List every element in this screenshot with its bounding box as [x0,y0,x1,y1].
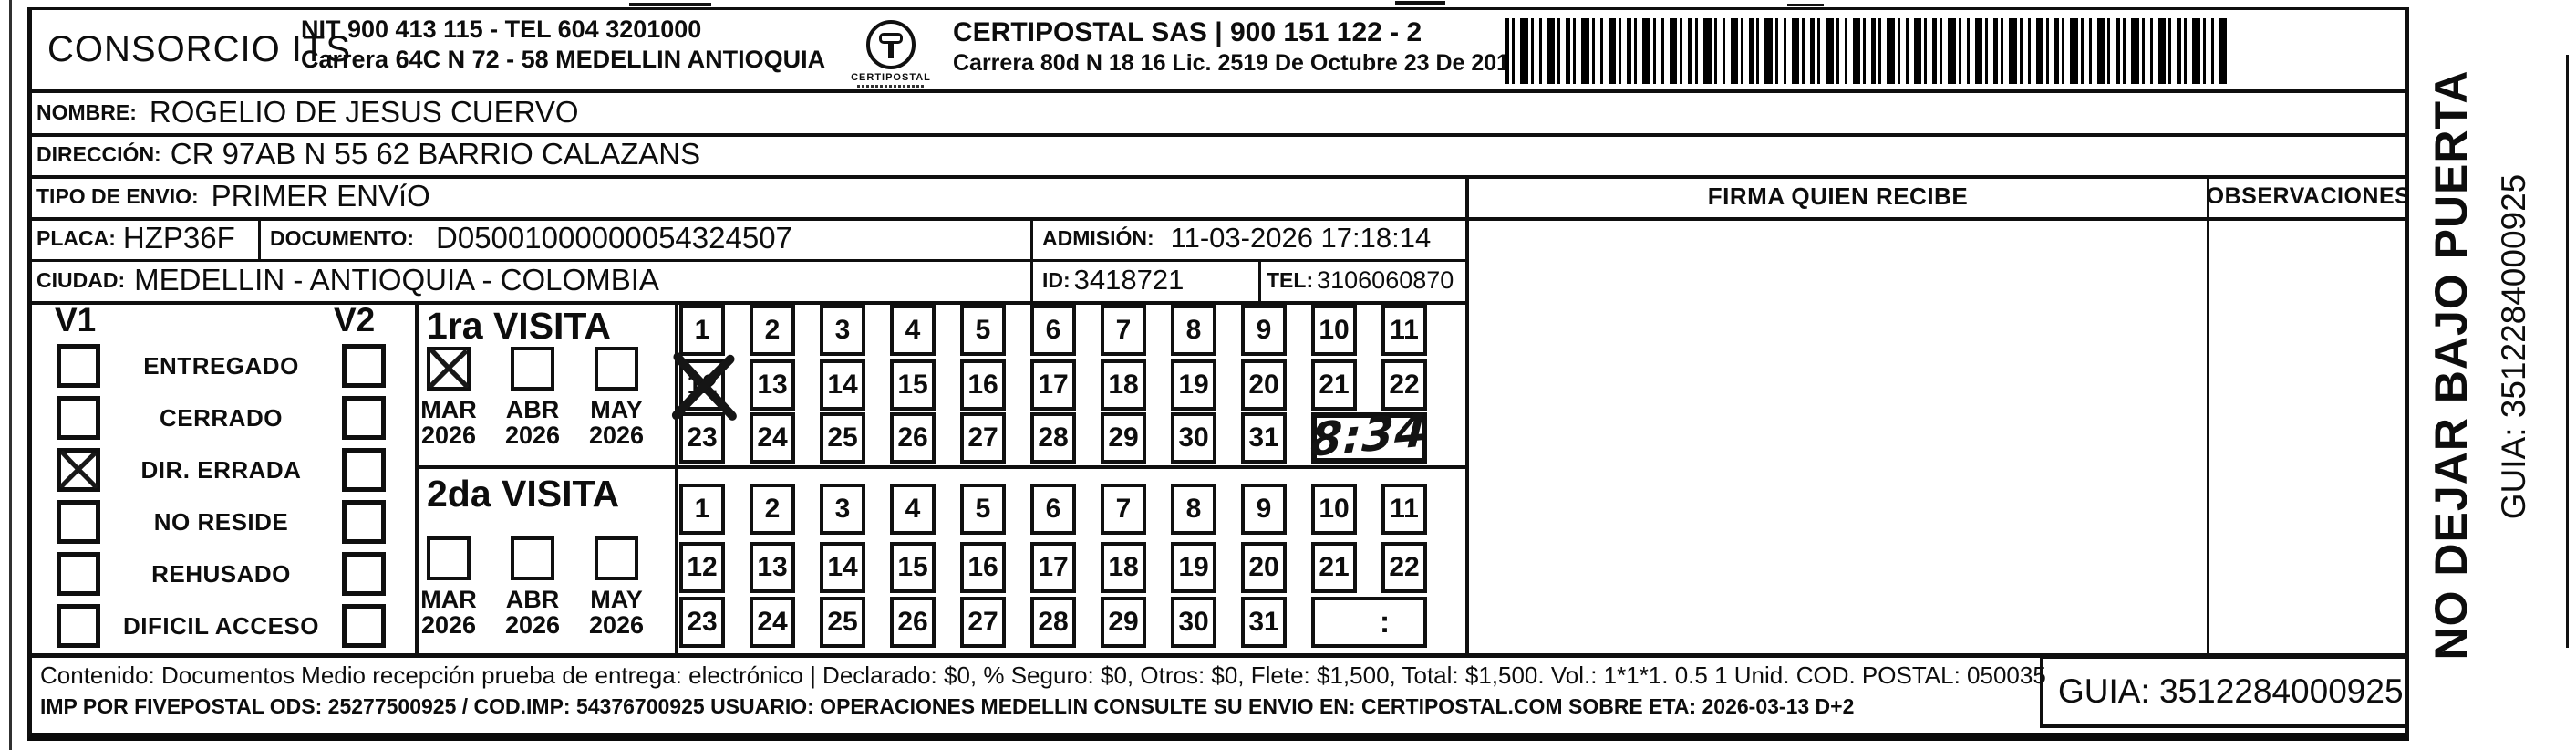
day-box-10: 10 [1311,305,1357,356]
month-name: MAR [420,587,477,612]
day-box-22: 22 [1381,359,1427,411]
status-label: ENTREGADO [100,352,342,380]
guia-number-box: GUIA: 3512284000925 [2040,655,2409,728]
day-box-10: 10 [1311,484,1357,535]
status-label: NO RESIDE [100,508,342,536]
day-number: 10 [1319,315,1349,346]
day-box-7: 7 [1101,305,1146,356]
day-box-18: 18 [1101,542,1146,593]
day-number: 24 [757,607,787,638]
day-box-7: 7 [1101,484,1146,535]
postal-seal-icon [866,20,916,69]
day-number: 5 [976,494,991,525]
status-label: DIFICIL ACCESO [100,612,342,641]
handwritten-x-mark [668,349,740,424]
certipostal-info-line2: Carrera 80d N 18 16 Lic. 2519 De Octubre… [953,49,1522,77]
day-box-5: 5 [960,484,1006,535]
day-box-14: 14 [820,542,865,593]
status-checkbox-v2 [342,448,386,492]
month-name: MAY [590,587,643,612]
day-box-31: 31 [1241,412,1287,464]
placa-cell: PLACA: HZP36F [27,217,258,259]
day-number: 14 [827,370,857,401]
visit1-day-row: 12 13141516171819202122 [679,359,1429,411]
status-checkbox-v2 [342,604,386,648]
certipostal-info-line1: CERTIPOSTAL SAS | 900 151 122 - 2 [953,16,1522,49]
day-number: 15 [897,370,927,401]
day-box-25: 25 [820,597,865,648]
day-number: 17 [1038,370,1068,401]
month-checkbox [595,347,638,391]
day-number: 16 [967,552,998,583]
day-box-31: 31 [1241,597,1287,648]
scan-artifact [1395,1,1445,5]
visit1-day-row: 2324252627282930318:34 [679,412,1429,464]
day-box-15: 15 [890,542,936,593]
observaciones-header: OBSERVACIONES [2209,175,2407,217]
day-box-13: 13 [750,542,795,593]
month-option: MAR2026 [418,536,480,638]
ciudad-label: CIUDAD: [36,268,125,293]
scan-edge-line [9,0,12,750]
day-number: 26 [897,422,927,453]
day-number: 22 [1389,370,1419,401]
certipostal-info: CERTIPOSTAL SAS | 900 151 122 - 2 Carrer… [953,16,1522,77]
tel-cell: TEL: 3106060870 [1261,259,1465,301]
day-number: 28 [1038,422,1068,453]
day-box-3: 3 [820,305,865,356]
month-year: 2026 [589,422,644,448]
status-checkbox-v1 [57,604,100,648]
status-label: DIR. ERRADA [100,456,342,484]
column-header-v2: V2 [334,301,375,339]
consorcio-info-line1: NIT 900 413 115 - TEL 604 3201000 [301,15,825,45]
day-number: 3 [835,315,851,346]
day-box-29: 29 [1101,597,1146,648]
day-number: 11 [1390,315,1419,346]
day-number: 29 [1108,607,1138,638]
status-checkbox-v1 [57,500,100,544]
visit1-day-row: 1234567891011 [679,305,1429,356]
direccion-value: CR 97AB N 55 62 BARRIO CALAZANS [171,137,700,172]
month-option: MAR2026 [418,347,480,448]
month-option: ABR2026 [502,536,564,638]
contenido-block: Contenido: Documentos Medio recepción pr… [40,659,2028,721]
right-edge-line [2566,55,2569,648]
day-number: 20 [1248,552,1278,583]
nombre-row: NOMBRE: ROGELIO DE JESUS CUERVO [27,91,2207,133]
day-number: 29 [1108,422,1138,453]
day-number: 31 [1248,422,1278,453]
day-box-16: 16 [960,359,1006,411]
day-box-18: 18 [1101,359,1146,411]
visit-time-box: 8:34 [1311,412,1427,464]
day-number: 4 [905,494,921,525]
admision-label: ADMISIÓN: [1042,226,1154,251]
tipo-envio-row: TIPO DE ENVIO: PRIMER ENVíO [27,175,1465,217]
visit2-months: MAR2026ABR2026MAY2026 [418,536,647,638]
status-checkbox-v2 [342,344,386,388]
day-number: 24 [757,422,787,453]
id-label: ID: [1042,268,1071,293]
day-box-24: 24 [750,597,795,648]
day-box-20: 20 [1241,359,1287,411]
day-box-6: 6 [1030,484,1076,535]
day-box-11: 11 [1381,305,1427,356]
day-number: 21 [1319,370,1349,401]
month-year: 2026 [505,612,560,638]
day-box-14: 14 [820,359,865,411]
day-number: 4 [905,315,921,346]
day-number: 7 [1116,315,1132,346]
day-number: 7 [1116,494,1132,525]
day-number: 13 [757,552,787,583]
day-number: 27 [967,422,998,453]
day-box-9: 9 [1241,305,1287,356]
day-box-4: 4 [890,484,936,535]
admision-cell: ADMISIÓN: 11-03-2026 17:18:14 [1033,217,1465,259]
day-number: 18 [1108,370,1138,401]
day-number: 6 [1046,494,1061,525]
month-name: ABR [506,587,560,612]
day-number: 8 [1186,494,1202,525]
day-box-26: 26 [890,597,936,648]
day-number: 30 [1178,607,1208,638]
day-box-28: 28 [1030,412,1076,464]
documento-label: DOCUMENTO: [270,226,414,251]
day-number: 30 [1178,422,1208,453]
scan-artifact [1787,4,1824,6]
side-guia-number: GUIA: 3512284000925 [2495,146,2539,547]
month-year: 2026 [505,422,560,448]
month-year: 2026 [421,612,476,638]
id-value: 3418721 [1074,264,1185,297]
status-label: CERRADO [100,404,342,432]
day-box-30: 30 [1171,412,1216,464]
tipo-envio-value: PRIMER ENVíO [212,179,430,214]
day-box-16: 16 [960,542,1006,593]
time-colon-placeholder: : [1349,605,1390,641]
day-box-2: 2 [750,484,795,535]
handwritten-x-mark [427,347,471,391]
day-number: 20 [1248,370,1278,401]
day-number: 9 [1257,315,1272,346]
status-label: REHUSADO [100,560,342,589]
month-name: MAY [590,397,643,422]
day-box-1: 1 [679,484,725,535]
day-box-26: 26 [890,412,936,464]
barcode [1505,18,2229,84]
day-box-11: 11 [1381,484,1427,535]
day-number: 17 [1038,552,1068,583]
day-box-3: 3 [820,484,865,535]
visit2-day-row: 1234567891011 [679,484,1429,535]
day-number: 1 [695,494,710,525]
handwritten-x-mark [57,449,99,491]
day-box-2: 2 [750,305,795,356]
day-box-9: 9 [1241,484,1287,535]
day-number: 31 [1248,607,1278,638]
day-number: 16 [967,370,998,401]
month-option: MAY2026 [585,536,647,638]
tipo-envio-label: TIPO DE ENVIO: [36,184,199,209]
month-checkbox [511,347,554,391]
status-row: REHUSADO [27,551,415,597]
status-panel: V1 V2 ENTREGADOCERRADO DIR. ERRADANO RES… [27,301,415,653]
side-warning-text: NO DEJAR BAJO PUERTA [2425,64,2481,666]
logo-caption: CERTIPOSTAL [841,72,941,83]
column-header-v1: V1 [55,301,96,339]
logo-subline [857,85,925,88]
month-option: ABR2026 [502,347,564,448]
day-number: 13 [757,370,787,401]
status-checkbox-v1 [57,344,100,388]
month-checkbox [595,536,638,580]
status-checkbox-v2 [342,552,386,596]
day-box-25: 25 [820,412,865,464]
ciudad-cell: CIUDAD: MEDELLIN - ANTIOQUIA - COLOMBIA [27,259,1030,301]
nombre-value: ROGELIO DE JESUS CUERVO [150,95,579,130]
day-box-15: 15 [890,359,936,411]
day-number: 11 [1390,494,1419,525]
visit2-title: 2da VISITA [427,473,619,516]
day-box-19: 19 [1171,542,1216,593]
day-box-4: 4 [890,305,936,356]
handwritten-time: 8:34 [1309,403,1429,467]
status-row: ENTREGADO [27,343,415,389]
day-number: 19 [1178,552,1208,583]
day-number: 15 [897,552,927,583]
direccion-label: DIRECCIÓN: [36,142,161,167]
placa-label: PLACA: [36,226,116,251]
day-box-28: 28 [1030,597,1076,648]
tel-value: 3106060870 [1317,266,1454,295]
status-checkbox-v2 [342,396,386,440]
visit2-day-row: 1213141516171819202122 [679,542,1429,593]
contenido-line2: IMP POR FIVEPOSTAL ODS: 25277500925 / CO… [40,692,2028,721]
day-box-27: 27 [960,597,1006,648]
documento-cell: DOCUMENTO: D05001000000054324507 [261,217,1030,259]
day-box-27: 27 [960,412,1006,464]
tel-label: TEL: [1267,268,1313,293]
status-row: DIFICIL ACCESO [27,603,415,649]
day-number: 27 [967,607,998,638]
id-cell: ID: 3418721 [1033,259,1258,301]
ciudad-value: MEDELLIN - ANTIOQUIA - COLOMBIA [134,263,659,297]
day-number: 25 [827,607,857,638]
day-number: 14 [827,552,857,583]
direccion-row: DIRECCIÓN: CR 97AB N 55 62 BARRIO CALAZA… [27,133,2207,175]
status-checkbox-v2 [342,500,386,544]
day-box-17: 17 [1030,359,1076,411]
day-number: 3 [835,494,851,525]
day-box-24: 24 [750,412,795,464]
status-checkbox-v1 [57,552,100,596]
day-box-17: 17 [1030,542,1076,593]
day-number: 9 [1257,494,1272,525]
day-number: 21 [1319,552,1349,583]
day-number: 25 [827,422,857,453]
status-checkbox-v1 [57,448,100,492]
day-box-8: 8 [1171,305,1216,356]
month-checkbox [427,536,471,580]
day-number: 8 [1186,315,1202,346]
day-box-12: 12 [679,542,725,593]
month-name: MAR [420,397,477,422]
month-checkbox [427,347,471,391]
status-checkbox-v1 [57,396,100,440]
day-box-21: 21 [1311,542,1357,593]
status-row: DIR. ERRADA [27,447,415,493]
month-year: 2026 [421,422,476,448]
day-box-22: 22 [1381,542,1427,593]
status-row: CERRADO [27,395,415,441]
day-number: 19 [1178,370,1208,401]
day-box-19: 19 [1171,359,1216,411]
visit1-title: 1ra VISITA [427,305,611,348]
placa-value: HZP36F [123,221,235,255]
day-number: 23 [687,422,717,453]
day-number: 5 [976,315,991,346]
day-box-6: 6 [1030,305,1076,356]
day-number: 28 [1038,607,1068,638]
day-box-13: 13 [750,359,795,411]
documento-value: D05001000000054324507 [436,221,792,255]
day-box-21: 21 [1311,359,1357,411]
day-number: 6 [1046,315,1061,346]
firma-header: FIRMA QUIEN RECIBE [1469,175,2207,217]
month-option: MAY2026 [585,347,647,448]
day-number: 18 [1108,552,1138,583]
day-box-1: 1 [679,305,725,356]
day-box-23: 23 [679,597,725,648]
day-number: 2 [765,315,781,346]
nombre-label: NOMBRE: [36,100,137,125]
day-box-5: 5 [960,305,1006,356]
month-year: 2026 [589,612,644,638]
day-box-8: 8 [1171,484,1216,535]
contenido-line1: Contenido: Documentos Medio recepción pr… [40,659,2028,692]
day-number: 1 [695,315,710,346]
day-number: 23 [687,607,717,638]
day-box-20: 20 [1241,542,1287,593]
status-row: NO RESIDE [27,499,415,545]
day-number: 26 [897,607,927,638]
month-checkbox [511,536,554,580]
month-name: ABR [506,397,560,422]
admision-value: 11-03-2026 17:18:14 [1171,222,1432,255]
consorcio-info: NIT 900 413 115 - TEL 604 3201000 Carrer… [301,15,825,75]
scan-artifact [629,3,711,6]
day-box-30: 30 [1171,597,1216,648]
certipostal-logo: CERTIPOSTAL [841,20,941,88]
day-box-29: 29 [1101,412,1146,464]
day-number: 22 [1389,552,1419,583]
visit2-day-row: 232425262728293031: [679,597,1429,648]
visit-time-box: : [1311,597,1427,648]
day-box-12: 12 [679,359,725,411]
shipping-guide-scan: CONSORCIO ITS NIT 900 413 115 - TEL 604 … [0,0,2576,750]
day-number: 12 [687,552,717,583]
day-number: 2 [765,494,781,525]
visit1-months: MAR2026ABR2026MAY2026 [418,347,647,448]
day-number: 10 [1319,494,1349,525]
consorcio-info-line2: Carrera 64C N 72 - 58 MEDELLIN ANTIOQUIA [301,45,825,75]
